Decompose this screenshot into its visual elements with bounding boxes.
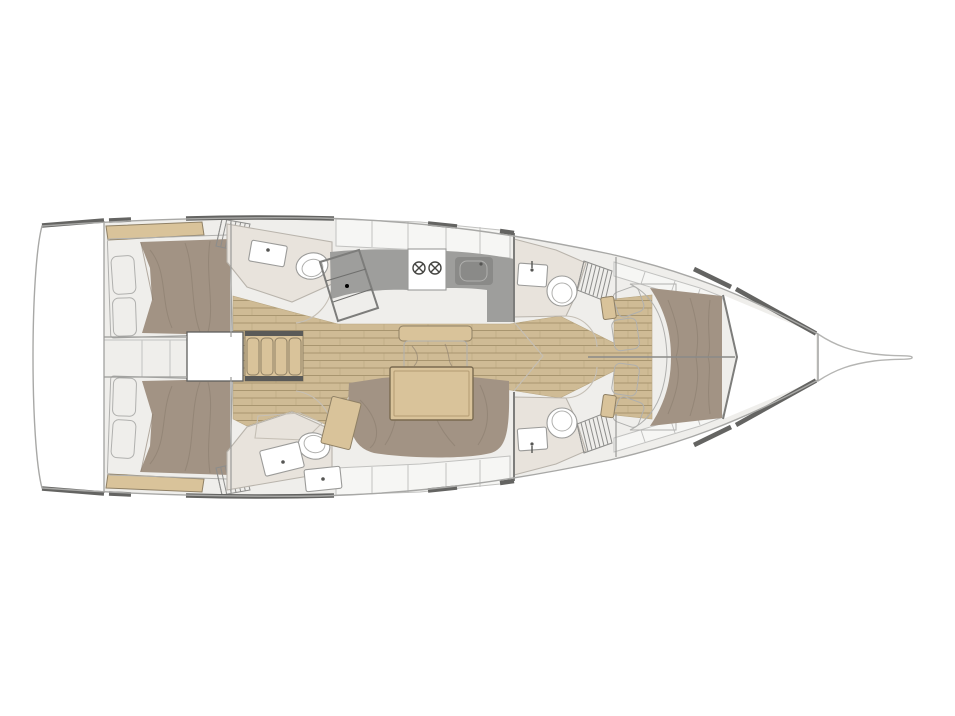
faucet [266,248,270,252]
entry-shelf [601,296,617,320]
step-tread [247,338,259,375]
steps-cap-top [245,331,303,336]
faucet-dot [530,442,533,445]
salon-table [390,367,473,420]
toilet [547,276,577,306]
step-tread [261,338,273,375]
bench-backrest [399,326,472,341]
faucet [281,460,285,464]
yacht-floor-plan [0,0,955,716]
entry-shelf [601,394,617,418]
cabinet-knob [321,477,325,481]
toilet [547,408,577,438]
transom-platform [33,221,104,493]
faucet-dot [530,268,533,271]
faucet [479,262,482,265]
duvet [140,239,230,335]
chart-table-hinge [345,284,349,288]
step-tread [289,338,301,375]
duvet [140,379,230,475]
step-tread [275,338,287,375]
floor-plan-canvas [0,0,955,716]
steps-cap-bottom [245,376,303,381]
companionway-hatch [187,332,243,381]
bow-sprit [818,334,912,381]
